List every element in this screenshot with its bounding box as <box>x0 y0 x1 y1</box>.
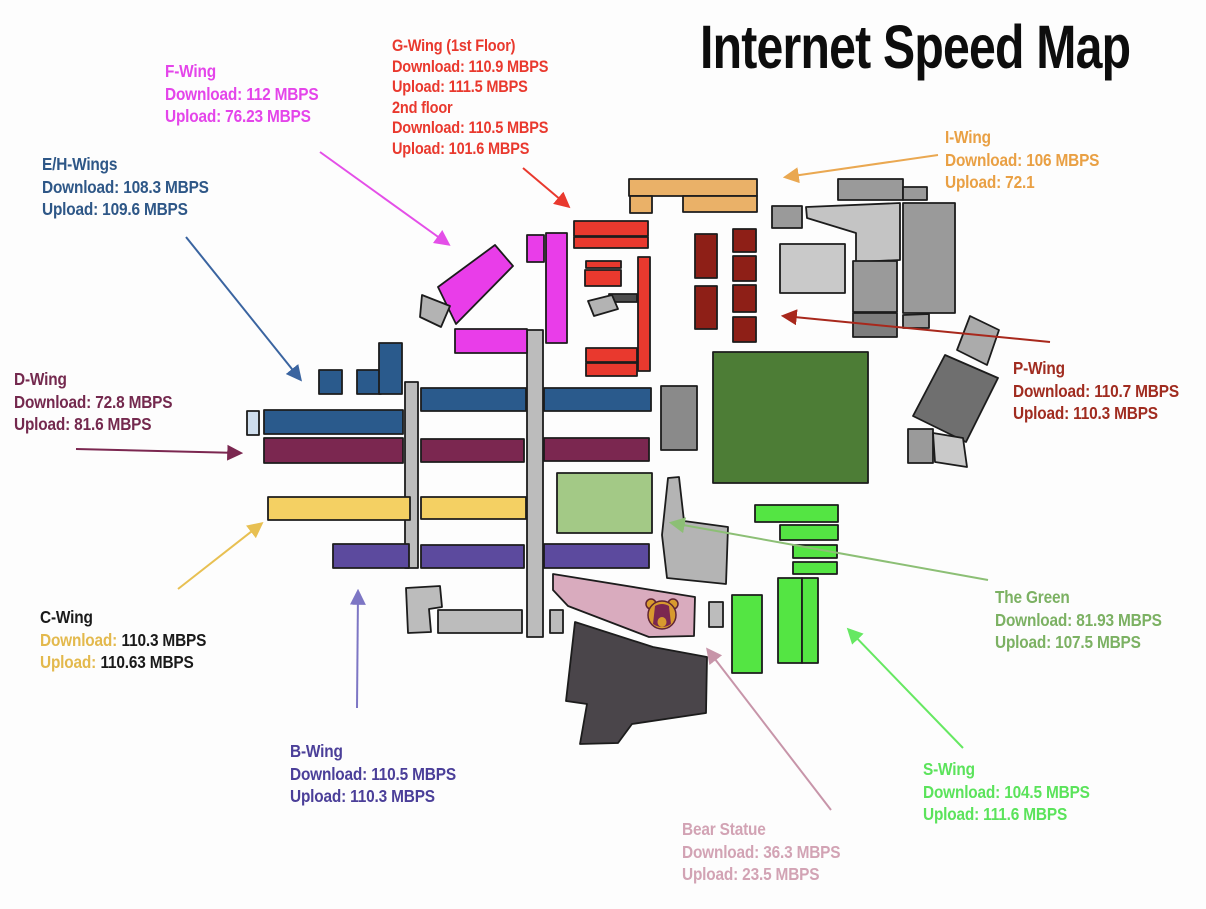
building-shape <box>586 261 621 268</box>
walkway <box>527 330 543 637</box>
walkway <box>406 586 442 633</box>
b-wing-upload: Upload: 110.3 MBPS <box>290 785 456 808</box>
building-shape <box>421 497 526 519</box>
arrow-g-wing <box>523 168 568 206</box>
g-wing-floor2-title: 2nd floor <box>392 98 548 119</box>
building-shape <box>661 386 697 450</box>
label-bear-statue: Bear Statue Download: 36.3 MBPS Upload: … <box>682 818 840 886</box>
building-shape <box>421 388 526 411</box>
building-shape <box>586 363 637 376</box>
internet-speed-map-page: Internet Speed Map F-Wing Download: 112 … <box>0 0 1206 909</box>
building-d-wing <box>264 438 649 463</box>
label-b-wing: B-Wing Download: 110.5 MBPS Upload: 110.… <box>290 740 456 808</box>
building-shape <box>574 221 648 236</box>
label-c-wing: C-Wing Download:110.3 MBPS Upload:110.63… <box>40 606 206 674</box>
c-wing-download-label: Download: <box>40 630 117 650</box>
p-wing-upload: Upload: 110.3 MBPS <box>1013 402 1179 425</box>
arrow-d-wing <box>76 449 240 453</box>
c-wing-download-value: 110.3 MBPS <box>122 630 207 650</box>
label-p-wing: P-Wing Download: 110.7 MBPS Upload: 110.… <box>1013 357 1179 425</box>
building-s-wing <box>732 505 838 673</box>
walkway <box>709 602 723 627</box>
building-shape <box>268 497 410 520</box>
building-shape <box>455 329 527 353</box>
the-green-download: Download: 81.93 MBPS <box>995 609 1162 632</box>
label-the-green: The Green Download: 81.93 MBPS Upload: 1… <box>995 586 1162 654</box>
building-shape <box>629 179 757 196</box>
building-shape <box>438 245 513 324</box>
c-wing-upload-value: 110.63 MBPS <box>100 652 193 672</box>
building-p-wing <box>695 229 756 342</box>
building-i-wing <box>629 179 757 213</box>
p-wing-title: P-Wing <box>1013 357 1179 380</box>
building-shape <box>379 343 402 394</box>
b-wing-title: B-Wing <box>290 740 456 763</box>
building-shape <box>778 578 802 663</box>
building-shape <box>264 438 403 463</box>
d-wing-download: Download: 72.8 MBPS <box>14 391 172 414</box>
the-green-upload: Upload: 107.5 MBPS <box>995 631 1162 654</box>
building-shape <box>772 206 802 228</box>
building-shape <box>544 438 649 461</box>
walkway <box>550 610 563 633</box>
building-shape <box>585 270 621 286</box>
eh-wings-title: E/H-Wings <box>42 153 209 176</box>
the-green-title: The Green <box>995 586 1162 609</box>
f-wing-title: F-Wing <box>165 60 318 83</box>
building-shape <box>733 256 756 281</box>
g-wing-floor2-download: Download: 110.5 MBPS <box>392 118 548 139</box>
s-wing-title: S-Wing <box>923 758 1090 781</box>
bear-statue-title: Bear Statue <box>682 818 840 841</box>
the-green-lawn <box>713 352 868 483</box>
s-wing-upload: Upload: 111.6 MBPS <box>923 803 1090 826</box>
building-shape <box>733 285 756 312</box>
arrow-bear-statue <box>708 650 831 810</box>
arrow-b-wing <box>357 592 358 708</box>
building-shape <box>544 388 651 411</box>
building-shape <box>527 235 544 262</box>
building-f-wing <box>420 233 567 353</box>
g-wing-title: G-Wing (1st Floor) <box>392 36 548 57</box>
bear-statue-upload: Upload: 23.5 MBPS <box>682 863 840 886</box>
building-shape <box>638 257 650 371</box>
bear-statue-icon <box>646 599 678 629</box>
building-shape <box>683 196 757 212</box>
lawn-small <box>557 473 652 533</box>
c-wing-upload-label: Upload: <box>40 652 96 672</box>
c-wing-download-line: Download:110.3 MBPS <box>40 629 206 652</box>
building-shape <box>802 578 818 663</box>
building-g-wing <box>574 221 650 376</box>
building-shape <box>546 233 567 343</box>
building-shape <box>908 429 933 463</box>
building-shape <box>780 525 838 540</box>
page-title: Internet Speed Map <box>700 12 1130 82</box>
walkway <box>438 610 522 633</box>
eh-wings-upload: Upload: 109.6 MBPS <box>42 198 209 221</box>
arrow-s-wing <box>849 630 963 748</box>
building-shape <box>780 244 845 293</box>
c-wing-upload-line: Upload:110.63 MBPS <box>40 651 206 674</box>
g-wing-upload: Upload: 111.5 MBPS <box>392 77 548 98</box>
building-shape <box>421 439 524 462</box>
building-shape <box>695 234 717 278</box>
label-d-wing: D-Wing Download: 72.8 MBPS Upload: 81.6 … <box>14 368 172 436</box>
building-shape <box>630 196 652 213</box>
building-shape <box>755 505 838 522</box>
i-wing-download: Download: 106 MBPS <box>945 149 1099 172</box>
label-f-wing: F-Wing Download: 112 MBPS Upload: 76.23 … <box>165 60 318 128</box>
building-b-wing <box>333 544 649 568</box>
building-shape <box>853 261 897 312</box>
building-shape <box>588 295 618 316</box>
arrow-f-wing <box>320 152 448 244</box>
building-shape <box>733 317 756 342</box>
building-shape <box>903 187 927 200</box>
building-shape <box>903 314 929 328</box>
label-eh-wings: E/H-Wings Download: 108.3 MBPS Upload: 1… <box>42 153 209 221</box>
i-wing-title: I-Wing <box>945 126 1099 149</box>
g-wing-floor2-upload: Upload: 101.6 MBPS <box>392 139 548 160</box>
bear-statue-download: Download: 36.3 MBPS <box>682 841 840 864</box>
building-shape <box>357 370 381 394</box>
s-wing-download: Download: 104.5 MBPS <box>923 781 1090 804</box>
building-shape <box>586 348 637 362</box>
walkway <box>405 382 418 568</box>
d-wing-title: D-Wing <box>14 368 172 391</box>
arrow-i-wing <box>786 155 938 177</box>
building-shape <box>421 545 524 568</box>
p-wing-download: Download: 110.7 MBPS <box>1013 380 1179 403</box>
g-wing-download: Download: 110.9 MBPS <box>392 57 548 78</box>
label-s-wing: S-Wing Download: 104.5 MBPS Upload: 111.… <box>923 758 1090 826</box>
b-wing-download: Download: 110.5 MBPS <box>290 763 456 786</box>
building-shape <box>695 286 717 329</box>
building-shape <box>247 411 259 435</box>
arrow-eh-wings <box>186 237 300 379</box>
f-wing-download: Download: 112 MBPS <box>165 83 318 106</box>
building-shape <box>733 229 756 252</box>
arrow-c-wing <box>178 524 261 589</box>
building-shape <box>544 544 649 568</box>
building-shape <box>574 237 648 248</box>
label-g-wing: G-Wing (1st Floor) Download: 110.9 MBPS … <box>392 36 548 159</box>
building-c-wing <box>268 497 526 520</box>
building-shape <box>793 562 837 574</box>
i-wing-upload: Upload: 72.1 <box>945 171 1099 194</box>
building-shape <box>957 316 999 365</box>
building-shape <box>838 179 903 200</box>
d-wing-upload: Upload: 81.6 MBPS <box>14 413 172 436</box>
label-i-wing: I-Wing Download: 106 MBPS Upload: 72.1 <box>945 126 1099 194</box>
building-shape <box>903 203 955 313</box>
building-charcoal <box>566 622 707 744</box>
building-shape <box>732 595 762 673</box>
building-shape <box>933 433 967 467</box>
eh-wings-download: Download: 108.3 MBPS <box>42 176 209 199</box>
building-shape <box>333 544 409 568</box>
building-shape <box>264 410 403 434</box>
f-wing-upload: Upload: 76.23 MBPS <box>165 105 318 128</box>
c-wing-title: C-Wing <box>40 606 206 629</box>
building-shape <box>319 370 342 394</box>
